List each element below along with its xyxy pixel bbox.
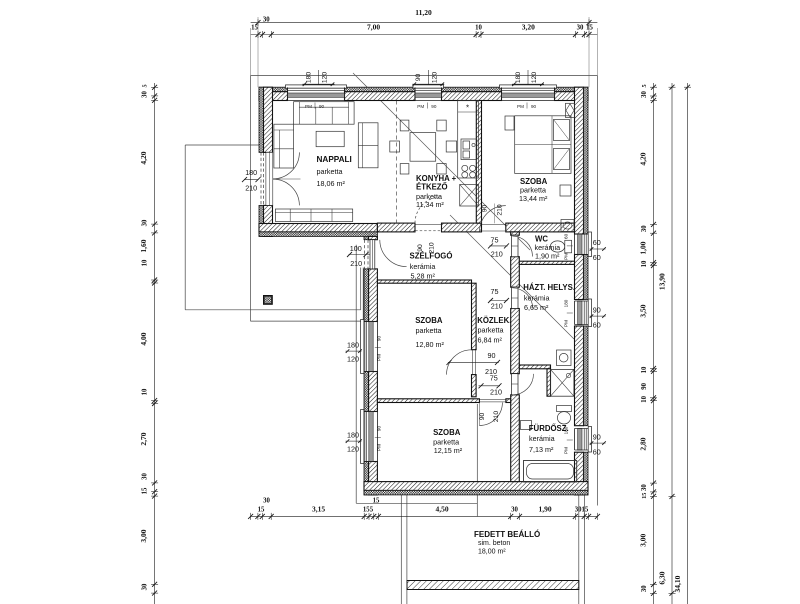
svg-text:60: 60 — [593, 447, 601, 456]
svg-text:30: 30 — [511, 507, 518, 514]
svg-text:FÜRDŐSZ.: FÜRDŐSZ. — [529, 424, 569, 433]
svg-text:90: 90 — [415, 74, 422, 82]
svg-text:210: 210 — [485, 367, 497, 376]
svg-text:60: 60 — [593, 320, 601, 329]
svg-text:13,90: 13,90 — [658, 273, 667, 290]
svg-text:5: 5 — [142, 84, 149, 87]
svg-text:5: 5 — [641, 84, 648, 87]
svg-text:3,00: 3,00 — [139, 529, 148, 542]
svg-text:120: 120 — [347, 445, 359, 454]
svg-text:1,00: 1,00 — [639, 241, 648, 254]
svg-text:4,00: 4,00 — [139, 332, 148, 345]
svg-text:parketta: parketta — [416, 326, 442, 335]
svg-text:60: 60 — [564, 233, 569, 239]
svg-text:34,10: 34,10 — [673, 575, 682, 592]
svg-text:180: 180 — [245, 168, 257, 177]
svg-text:PM: PM — [417, 104, 424, 109]
svg-text:4,50: 4,50 — [435, 505, 448, 514]
svg-text:10: 10 — [641, 395, 648, 402]
svg-text:15: 15 — [251, 25, 258, 32]
svg-text:kerámia: kerámia — [529, 434, 555, 443]
svg-text:kerámia: kerámia — [524, 293, 550, 302]
svg-text:3,15: 3,15 — [312, 505, 325, 514]
svg-text:6,84 m²: 6,84 m² — [478, 336, 503, 345]
svg-text:75: 75 — [491, 235, 499, 244]
svg-text:10: 10 — [641, 260, 648, 267]
svg-text:10: 10 — [475, 25, 482, 32]
svg-text:30: 30 — [577, 25, 584, 32]
svg-text:15: 15 — [373, 498, 380, 505]
svg-text:90: 90 — [377, 426, 382, 432]
svg-text:12,80 m²: 12,80 m² — [416, 340, 445, 349]
svg-text:210: 210 — [491, 301, 503, 310]
svg-text:3,20: 3,20 — [522, 23, 535, 32]
svg-text:18,06 m²: 18,06 m² — [317, 179, 346, 188]
svg-text:90: 90 — [479, 413, 486, 421]
svg-text:30: 30 — [142, 219, 149, 226]
svg-text:parketta: parketta — [433, 437, 459, 446]
svg-text:120: 120 — [347, 355, 359, 364]
svg-text:6,65 m²: 6,65 m² — [524, 303, 549, 312]
svg-text:210: 210 — [493, 411, 500, 423]
svg-text:2,70: 2,70 — [139, 432, 148, 445]
svg-text:210: 210 — [350, 259, 362, 268]
svg-text:PM: PM — [564, 447, 569, 454]
svg-text:210: 210 — [490, 387, 502, 396]
svg-text:90: 90 — [319, 104, 325, 109]
svg-text:90: 90 — [377, 336, 382, 342]
svg-text:180: 180 — [305, 72, 312, 84]
svg-text:5,28 m²: 5,28 m² — [411, 272, 436, 281]
svg-text:parketta: parketta — [478, 325, 504, 334]
svg-text:1,90: 1,90 — [538, 505, 551, 514]
svg-text:100: 100 — [350, 244, 362, 253]
svg-text:155: 155 — [363, 507, 374, 514]
svg-text:SZOBA: SZOBA — [433, 428, 461, 437]
svg-text:180: 180 — [564, 299, 569, 307]
svg-text:1,60: 1,60 — [139, 239, 148, 252]
svg-text:13,44 m²: 13,44 m² — [519, 194, 548, 203]
svg-text:18,00 m²: 18,00 m² — [478, 549, 506, 556]
svg-text:90: 90 — [641, 382, 648, 389]
svg-text:10: 10 — [142, 388, 149, 395]
svg-text:15: 15 — [258, 507, 265, 514]
svg-text:90: 90 — [593, 305, 601, 314]
svg-text:10: 10 — [641, 366, 648, 373]
svg-text:kerámia: kerámia — [410, 262, 436, 271]
svg-text:PM: PM — [517, 104, 524, 109]
svg-text:ÉTKEZŐ: ÉTKEZŐ — [416, 183, 448, 192]
svg-text:10: 10 — [142, 259, 149, 266]
svg-text:7,13 m²: 7,13 m² — [529, 445, 554, 454]
svg-text:SZÉLFOGÓ: SZÉLFOGÓ — [410, 251, 453, 260]
svg-text:60: 60 — [593, 238, 601, 247]
svg-text:90: 90 — [431, 104, 437, 109]
svg-text:PM: PM — [564, 320, 569, 327]
svg-text:15: 15 — [641, 493, 648, 499]
svg-text:180: 180 — [515, 72, 522, 84]
svg-text:30: 30 — [641, 225, 648, 232]
svg-text:210: 210 — [245, 184, 257, 193]
svg-text:3,00: 3,00 — [639, 533, 648, 546]
svg-text:30: 30 — [641, 585, 648, 592]
svg-text:3,50: 3,50 — [639, 304, 648, 317]
svg-text:180: 180 — [347, 341, 359, 350]
svg-text:sim. beton: sim. beton — [478, 540, 510, 547]
svg-text:PM: PM — [377, 444, 382, 451]
svg-text:NAPPALI: NAPPALI — [317, 155, 352, 164]
svg-text:75: 75 — [491, 287, 499, 296]
svg-text:SZOBA: SZOBA — [415, 316, 443, 325]
svg-text:60: 60 — [593, 253, 601, 262]
svg-text:30: 30 — [263, 498, 270, 505]
svg-text:WC: WC — [535, 235, 548, 244]
svg-text:30: 30 — [641, 91, 648, 98]
svg-text:30: 30 — [142, 583, 149, 590]
svg-text:*: * — [466, 104, 469, 113]
svg-text:30: 30 — [142, 473, 149, 480]
svg-text:7,00: 7,00 — [367, 23, 380, 32]
svg-text:1,90 m²: 1,90 m² — [535, 251, 560, 260]
svg-text:210: 210 — [491, 250, 503, 259]
svg-text:180: 180 — [347, 431, 359, 440]
svg-text:90: 90 — [593, 432, 601, 441]
svg-text:6,30: 6,30 — [658, 571, 667, 584]
svg-text:KÖZLEK.: KÖZLEK. — [477, 316, 511, 325]
svg-text:15: 15 — [142, 487, 149, 494]
svg-text:90: 90 — [488, 351, 496, 360]
svg-text:30: 30 — [263, 17, 270, 24]
svg-text:30: 30 — [641, 484, 648, 491]
svg-text:11,34 m²: 11,34 m² — [416, 200, 444, 209]
svg-text:210: 210 — [496, 204, 503, 216]
svg-text:HÁZT. HELYS.: HÁZT. HELYS. — [523, 283, 575, 292]
svg-text:4,20: 4,20 — [639, 152, 648, 165]
svg-text:30: 30 — [142, 91, 149, 98]
svg-text:PM: PM — [564, 253, 569, 260]
svg-text:4,20: 4,20 — [139, 151, 148, 164]
svg-text:120: 120 — [322, 72, 329, 84]
svg-text:120: 120 — [432, 72, 439, 84]
svg-text:2,80: 2,80 — [639, 437, 648, 450]
svg-text:15: 15 — [586, 25, 593, 32]
svg-text:PM: PM — [305, 104, 312, 109]
svg-text:parketta: parketta — [317, 167, 343, 176]
svg-text:90: 90 — [531, 104, 537, 109]
svg-text:FEDETT BEÁLLÓ: FEDETT BEÁLLÓ — [474, 530, 540, 539]
svg-text:11,20: 11,20 — [415, 8, 432, 17]
svg-text:120: 120 — [531, 72, 538, 84]
svg-text:90: 90 — [482, 205, 489, 213]
svg-text:PM: PM — [377, 354, 382, 361]
svg-text:3015: 3015 — [575, 507, 589, 514]
svg-text:12,15 m²: 12,15 m² — [434, 446, 463, 455]
